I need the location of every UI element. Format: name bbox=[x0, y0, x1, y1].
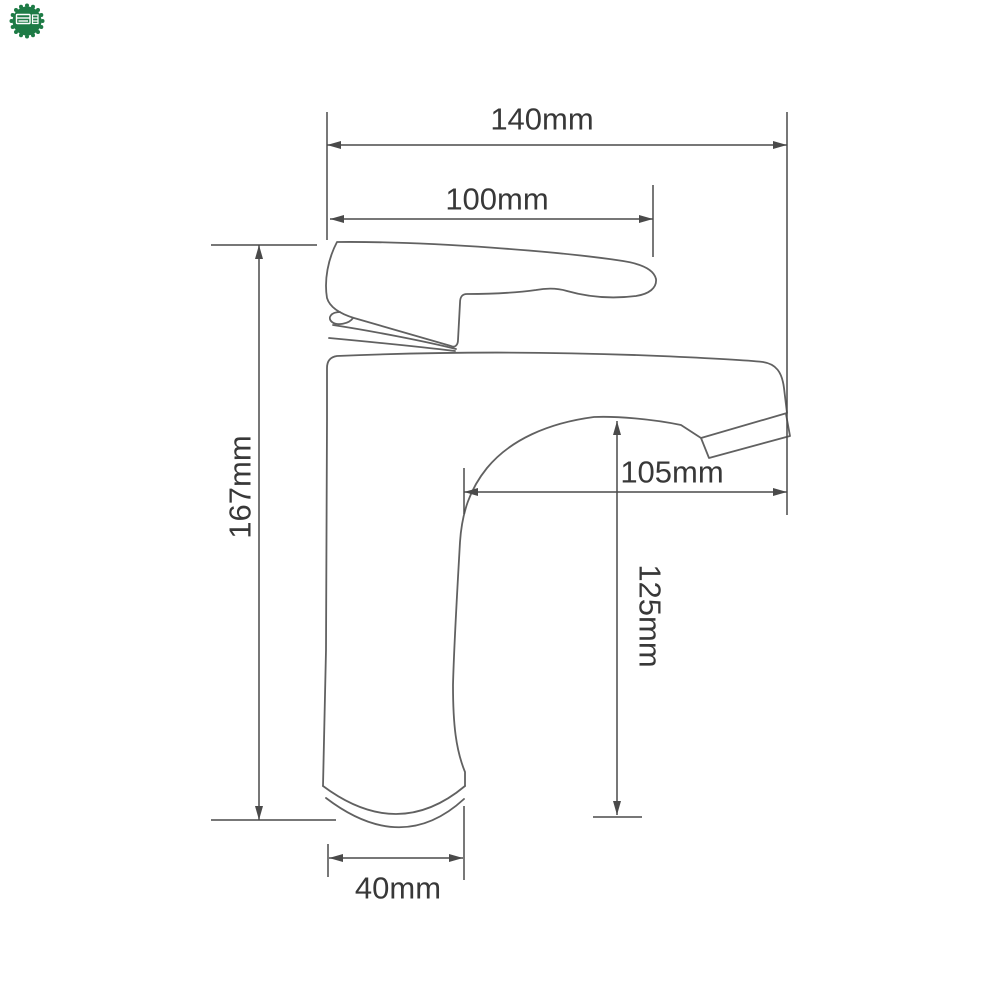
dimension-label-base-width: 40mm bbox=[355, 873, 441, 904]
watermark-logo bbox=[7, 1, 47, 41]
faucet-body-outline bbox=[323, 353, 787, 786]
faucet-dimension-diagram-page: { "logo": { "name": "green-scalloped-wat… bbox=[0, 0, 1000, 1000]
spout-aerator-band bbox=[701, 414, 790, 458]
faucet-handle-outline bbox=[326, 242, 656, 347]
green-badge-icon bbox=[7, 1, 47, 41]
faucet-outline bbox=[323, 242, 790, 827]
dimension-label-handle-length: 100mm bbox=[445, 184, 548, 215]
dimension-label-overall-length: 140mm bbox=[490, 104, 593, 135]
dimension-label-overall-height: 167mm bbox=[225, 435, 256, 538]
dimension-label-spout-reach: 105mm bbox=[620, 457, 723, 488]
base-rim-lower-arc bbox=[326, 798, 464, 827]
dimension-label-spout-height: 125mm bbox=[635, 564, 666, 667]
dimension-lines bbox=[211, 112, 787, 880]
technical-drawing-canvas bbox=[0, 0, 1000, 1000]
handle-base-edge bbox=[333, 325, 456, 349]
dim-base-width bbox=[328, 806, 464, 880]
